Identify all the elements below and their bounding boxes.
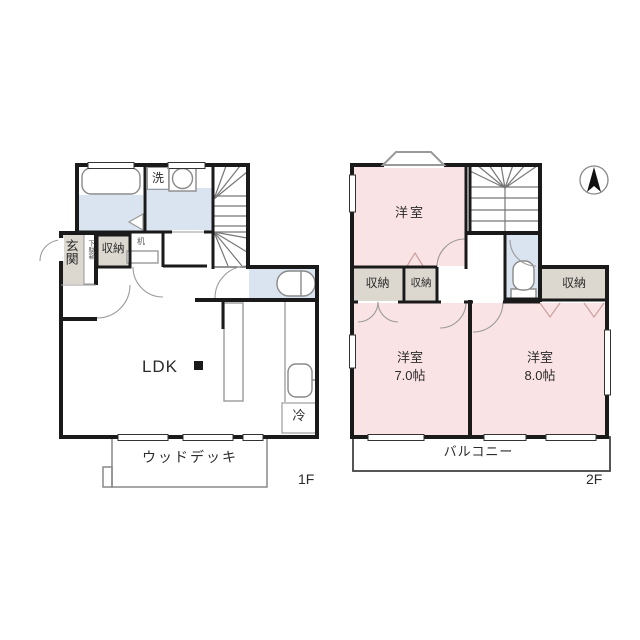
toilet-1f-door-swing [215, 266, 247, 298]
washroom-label: 洗 [147, 167, 169, 190]
north-compass [580, 166, 608, 194]
floor-plan-canvas: 洗 玄関 下駄箱 収納 机 LDK 冷 ウッドデッキ 1F 洋室 収納 収納 収… [0, 0, 640, 640]
bedroom-8-label: 洋室 8.0帖 [504, 349, 576, 385]
floor1-label: 1F [298, 471, 314, 488]
toilet-1f-fixture [277, 271, 315, 296]
stairs-2f [470, 165, 538, 233]
floor2-fixtures [511, 261, 536, 299]
stairs-2f-winders [470, 165, 537, 188]
kitchen-sink [288, 364, 312, 397]
stairs-1f-treads [213, 196, 248, 232]
stairs-1f-winders-bottom [214, 232, 247, 266]
pillar [194, 361, 203, 370]
storage-1f-label: 収納 [96, 243, 130, 257]
window-bedroom8-bottom-b [546, 435, 596, 441]
wood-deck-label: ウッドデッキ [112, 449, 268, 466]
window-ldk-bottom-a [118, 435, 168, 441]
dining-counter [224, 303, 243, 401]
storage-2f-right-label: 収納 [543, 276, 605, 290]
stairs-1f [213, 166, 248, 267]
window-bedroom7-bottom [368, 435, 424, 441]
bedroom-8-name: 洋室 [527, 350, 553, 365]
bedroom-7-label: 洋室 7.0帖 [374, 349, 446, 385]
bedroom-7-size: 7.0帖 [394, 368, 425, 383]
window-2f-right [605, 330, 611, 395]
desk-label: 机 [137, 237, 145, 247]
bedroom-top-label: 洋室 [379, 205, 441, 221]
fridge-label: 冷 [283, 408, 315, 424]
window-2f-left-a [350, 175, 356, 212]
bay-window-shape [383, 152, 444, 165]
balcony-label: バルコニー [400, 444, 557, 460]
window-ldk-bottom-b [183, 435, 233, 441]
window-ldk-bottom-c [243, 435, 263, 441]
storage-2f-mid-label: 収納 [404, 277, 438, 290]
window-wash-top [168, 163, 205, 169]
bathtub [82, 168, 140, 194]
bay-window [383, 152, 444, 165]
wood-deck-step [103, 467, 112, 487]
bedroom-8-size: 8.0帖 [524, 368, 555, 383]
storage-2f-left-label: 収納 [353, 276, 402, 290]
desk [127, 251, 158, 263]
window-bedroom8-bottom-a [484, 435, 526, 441]
hall-door-swing [133, 267, 163, 297]
stairs-2f-treads [470, 187, 538, 233]
window-2f-left-b [350, 335, 356, 368]
floor-plan-drawing [0, 0, 640, 640]
hall-ldk-door-swing [97, 285, 130, 318]
window-bath-top [88, 163, 134, 169]
stairs-1f-winders-top [214, 166, 247, 199]
washroom-floor [146, 188, 212, 232]
shoe-cabinet-label: 下駄箱 [86, 240, 94, 282]
washing-machine [173, 169, 193, 189]
entrance-label: 玄関 [63, 239, 79, 285]
ldk-label: LDK [130, 357, 190, 377]
entrance-door-swing [40, 240, 61, 261]
bedroom-7-name: 洋室 [397, 350, 423, 365]
bathroom-floor [79, 195, 143, 232]
floor2-label: 2F [586, 471, 602, 488]
